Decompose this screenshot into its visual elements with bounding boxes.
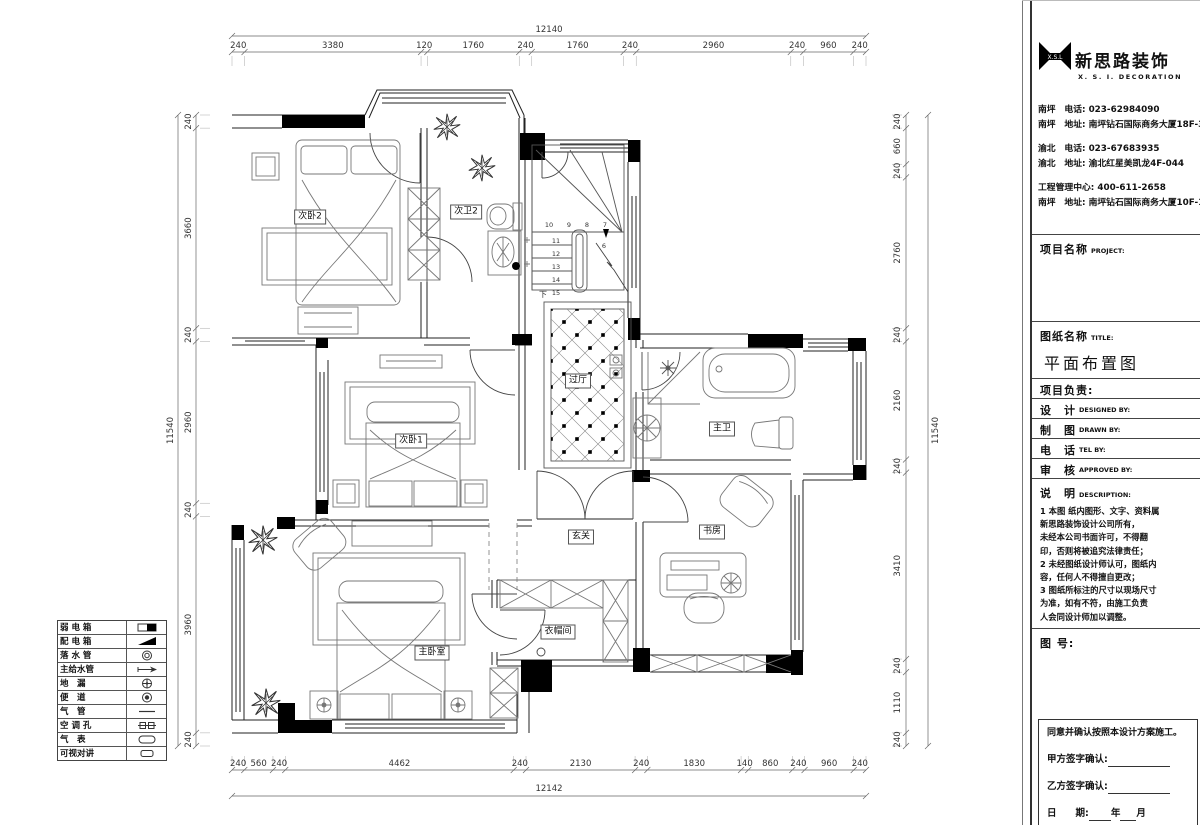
- agreement-text: 同意并确认按照本设计方案施工。: [1047, 726, 1197, 740]
- description-section: 说 明DESCRIPTION: 1 本图 纸内图形、文字、资料属 新思路装饰设计…: [1032, 478, 1200, 628]
- description-line: 为准，如有不符，由施工负责: [1040, 597, 1194, 610]
- project-name-section: 项目名称PROJECT:: [1032, 234, 1200, 321]
- description-line: 3 图纸所标注的尺寸以现场尺寸: [1040, 584, 1194, 597]
- distribution-box-icon: [127, 635, 166, 648]
- legend-item-floor-drain: 地 漏: [58, 677, 166, 691]
- legend-item-name: 气 表: [58, 733, 127, 746]
- contact-line: 渝北 地址: 渝北红星美凯龙4F-044: [1038, 157, 1194, 172]
- date-year-field[interactable]: [1089, 810, 1111, 821]
- toilet-drain-icon: [127, 691, 166, 704]
- svg-text:X.S.L: X.S.L: [1047, 54, 1063, 61]
- room-label-bath2: 次卫2: [450, 205, 482, 220]
- room-label-bedroom1: 次卧1: [395, 434, 427, 449]
- legend-item-weak-power-box: 弱 电 箱: [58, 621, 166, 635]
- legend-item-name: 空 调 孔: [58, 719, 127, 732]
- legend-item-name: 气 管: [58, 705, 127, 718]
- designed-by-row: 设 计DESIGNED BY:: [1032, 398, 1200, 418]
- legend-item-gas-pipe: 气 管: [58, 705, 166, 719]
- description-line: 容，任何人不得擅自更改；: [1040, 571, 1194, 584]
- weak-power-box-icon: [127, 621, 166, 634]
- legend-item-name: 弱 电 箱: [58, 621, 127, 634]
- description-line: 人会同设计师加以调整。: [1040, 611, 1194, 624]
- gas-pipe-icon: [127, 705, 166, 718]
- party-a-signature-row: 甲方签字确认:: [1047, 753, 1197, 767]
- gas-meter-icon: [127, 733, 166, 746]
- description-notes: 1 本图 纸内图形、文字、资料属 新思路装饰设计公司所有， 未经本公司书面许可，…: [1040, 505, 1194, 624]
- title-block: X.S.L 新思路装饰 X. S. I. DECORATION 南坪 电话: 0…: [1022, 0, 1200, 825]
- legend-item-ac-hole: 空 调 孔: [58, 719, 166, 733]
- room-label-master-bath: 主卫: [709, 422, 735, 437]
- downpipe-icon: [127, 649, 166, 662]
- legend-item-toilet-drain: 便 道: [58, 691, 166, 705]
- project-name-label: 项目名称: [1040, 243, 1088, 256]
- drawing-name-label: 图纸名称: [1040, 330, 1088, 343]
- party-b-signature-row: 乙方签字确认:: [1047, 780, 1197, 794]
- contact-line: 渝北 电话: 023-67683935: [1038, 142, 1194, 157]
- contact-line: 南坪 地址: 南坪钻石国际商务大厦10F-1: [1038, 196, 1194, 211]
- legend-item-downpipe: 落 水 管: [58, 649, 166, 663]
- description-line: 2 未经图纸设计师认可，图纸内: [1040, 558, 1194, 571]
- description-line: 1 本图 纸内图形、文字、资料属: [1040, 505, 1194, 518]
- main-water-pipe-icon: [127, 663, 166, 676]
- company-contacts: 南坪 电话: 023-62984090南坪 地址: 南坪钻石国际商务大厦18F-…: [1038, 103, 1194, 211]
- ac-hole-icon: [127, 719, 166, 732]
- legend-table: 弱 电 箱配 电 箱落 水 管主给水管地 漏便 道气 管空 调 孔气 表可视对讲: [57, 620, 167, 761]
- drawing-title: 平面布置图: [1044, 350, 1194, 374]
- title-block-border: [1022, 1, 1023, 825]
- date-month-field[interactable]: [1120, 810, 1136, 821]
- floor-drain-icon: [127, 677, 166, 690]
- tel-row: 电 话TEL BY:: [1032, 438, 1200, 458]
- legend-item-distribution-box: 配 电 箱: [58, 635, 166, 649]
- room-label-study: 书房: [699, 525, 725, 540]
- description-line: 新思路装饰设计公司所有，: [1040, 518, 1194, 531]
- drawing-name-section: 图纸名称TITLE: 平面布置图: [1032, 321, 1200, 378]
- company-name-en: X. S. I. DECORATION: [1078, 73, 1194, 81]
- contact-line: 工程管理中心: 400-611-2658: [1038, 181, 1194, 196]
- company-logo-icon: X.S.L: [1038, 41, 1072, 71]
- legend-item-name: 配 电 箱: [58, 635, 127, 648]
- signature-box: 同意并确认按照本设计方案施工。 甲方签字确认: 乙方签字确认: 日 期:年月: [1038, 719, 1198, 825]
- party-b-signature-field[interactable]: [1108, 783, 1170, 794]
- legend-item-video-intercom: 可视对讲: [58, 747, 166, 760]
- legend-item-name: 可视对讲: [58, 747, 127, 760]
- description-line: 印，否则将被追究法律责任；: [1040, 545, 1194, 558]
- legend-item-name: 便 道: [58, 691, 127, 704]
- room-label-hallway: 过厅: [565, 374, 591, 389]
- description-line: 未经本公司书面许可，不得翻: [1040, 531, 1194, 544]
- room-label-master-bedroom: 主卧室: [414, 646, 449, 661]
- party-a-signature-field[interactable]: [1108, 756, 1170, 767]
- video-intercom-icon: [127, 747, 166, 760]
- contact-line: 南坪 电话: 023-62984090: [1038, 103, 1194, 118]
- approved-by-row: 审 核APPROVED BY:: [1032, 458, 1200, 478]
- company-name: 新思路装饰: [1075, 53, 1170, 71]
- figure-number-section: 图 号:: [1032, 628, 1200, 706]
- project-leader-row: 项目负责:: [1032, 378, 1200, 398]
- room-label-cloakroom: 衣帽间: [540, 625, 575, 640]
- drawing-sheet: 2403380120176024017602402960240960240121…: [0, 0, 1200, 825]
- legend-item-name: 落 水 管: [58, 649, 127, 662]
- legend-item-main-water-pipe: 主给水管: [58, 663, 166, 677]
- contact-line: 南坪 地址: 南坪钻石国际商务大厦18F-3: [1038, 118, 1194, 133]
- room-label-bedroom2: 次卧2: [294, 210, 326, 225]
- company-header: X.S.L 新思路装饰 X. S. I. DECORATION 南坪 电话: 0…: [1032, 1, 1200, 234]
- legend-item-gas-meter: 气 表: [58, 733, 166, 747]
- date-row: 日 期:年月: [1047, 807, 1197, 821]
- drawn-by-row: 制 图DRAWN BY:: [1032, 418, 1200, 438]
- room-label-entry: 玄关: [568, 530, 594, 545]
- legend-item-name: 主给水管: [58, 663, 127, 676]
- legend-item-name: 地 漏: [58, 677, 127, 690]
